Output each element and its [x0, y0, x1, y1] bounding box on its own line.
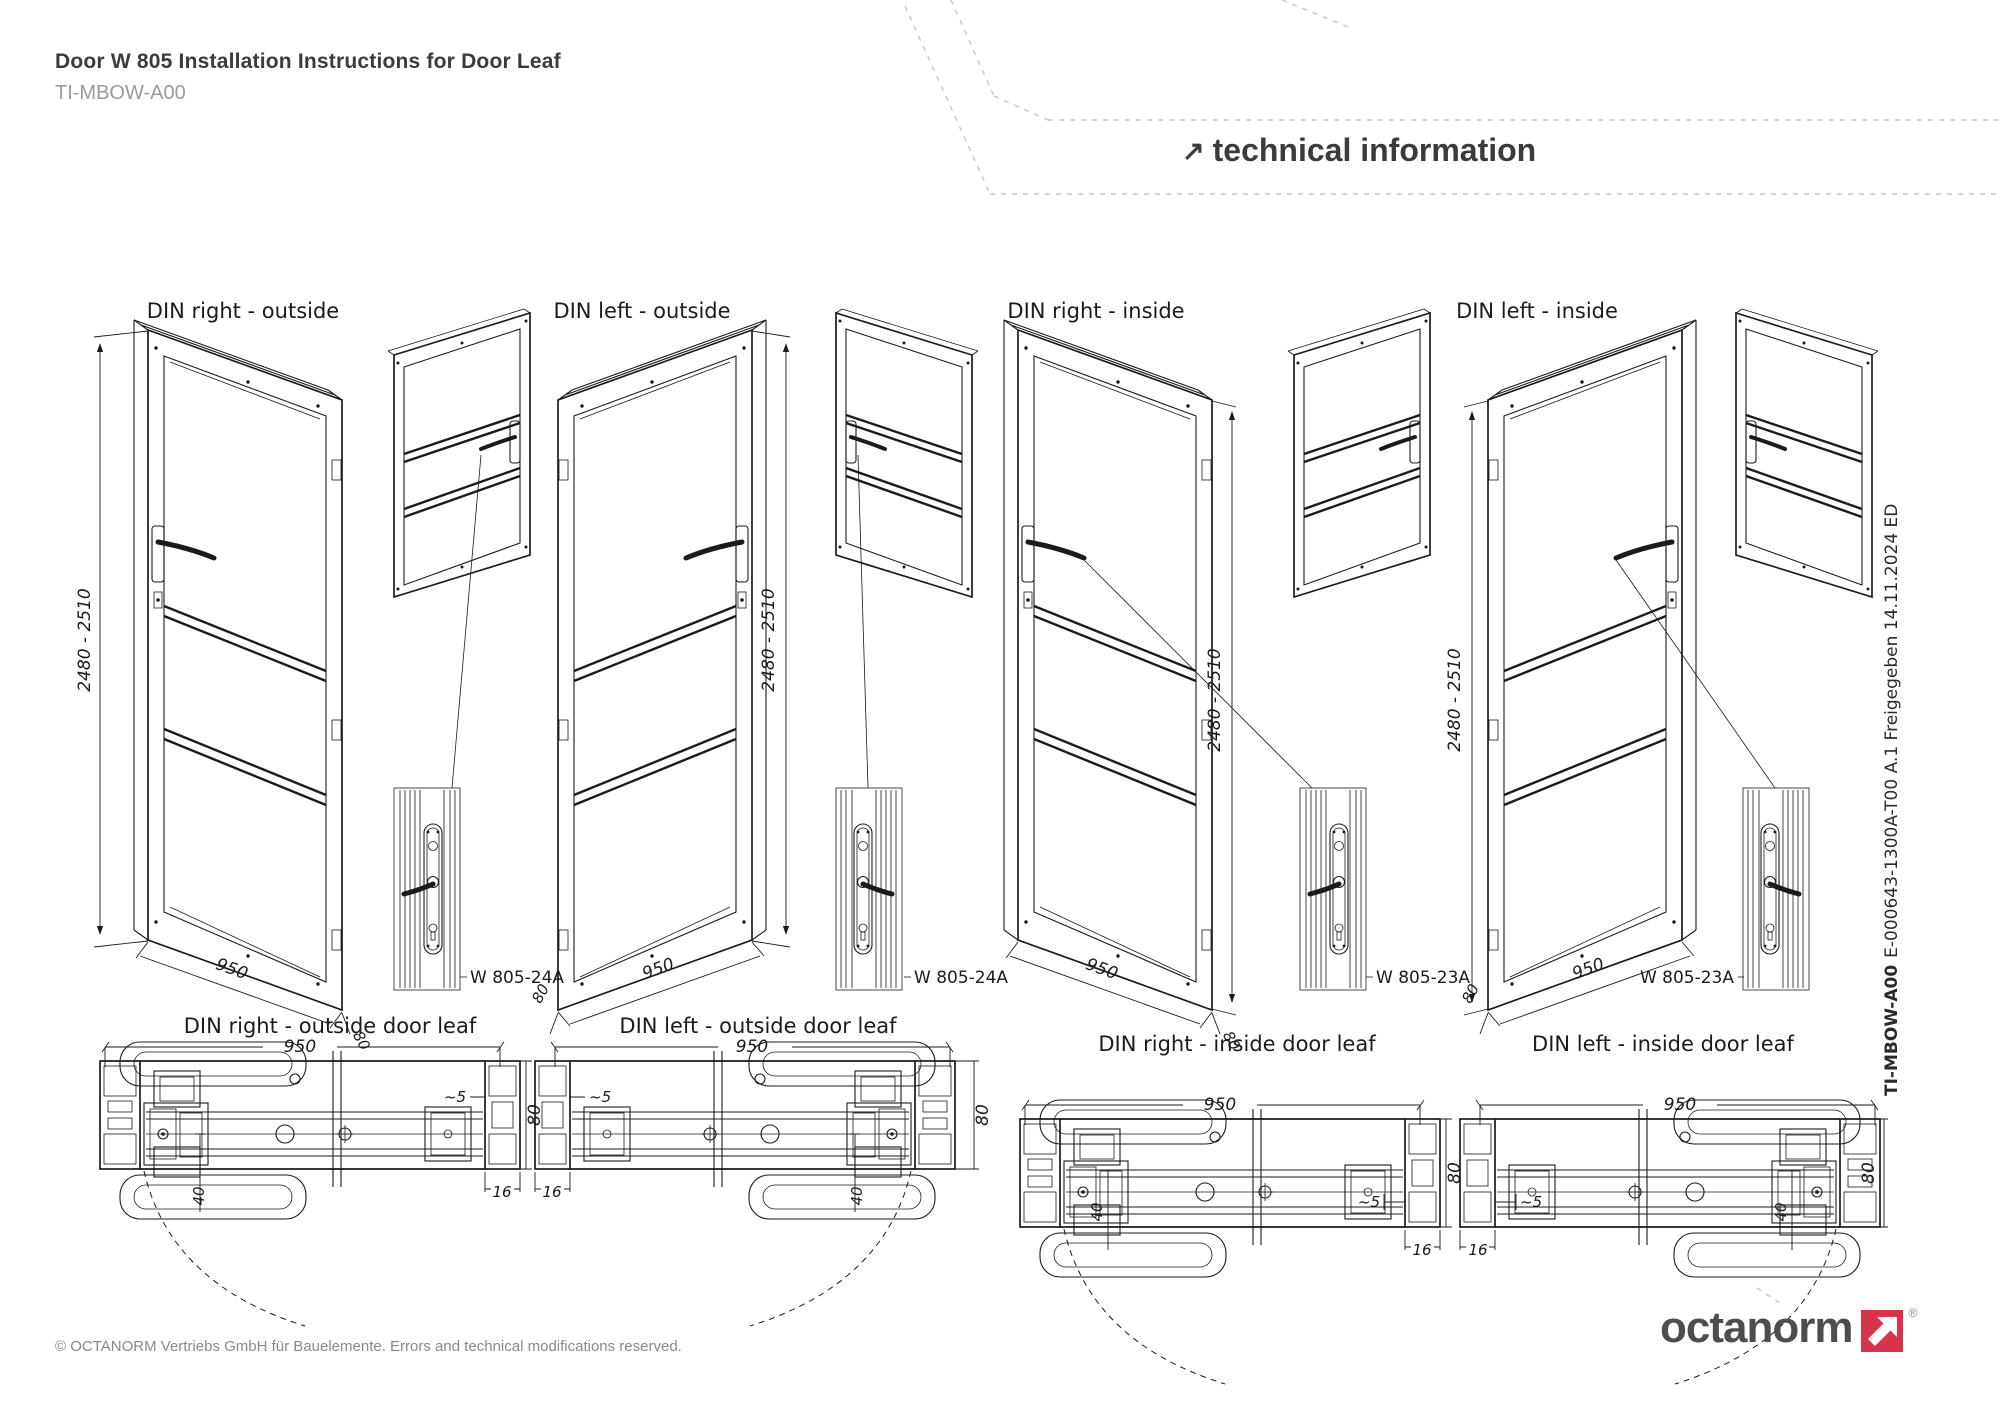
edge-dimension: 16	[1460, 1230, 1495, 1259]
gap-dimension: ~5	[1495, 1193, 1542, 1211]
detail-leader	[858, 455, 868, 788]
offset-dimension: 40	[1088, 1170, 1113, 1250]
gap-dimension: ~5	[1358, 1193, 1405, 1211]
edge-dimension: 16	[1405, 1230, 1440, 1259]
leaf-drawing	[388, 309, 530, 597]
lock-detail	[836, 788, 902, 990]
section-label: DIN right - outside door leaf	[184, 1014, 477, 1038]
section-drawing	[1020, 1100, 1440, 1384]
width-dimension-text: 950	[213, 954, 250, 984]
copyright-notice: © OCTANORM Vertriebs GmbH für Bauelement…	[55, 1338, 682, 1355]
door-drawing	[1488, 320, 1696, 1010]
gap-dimension: ~5	[444, 1088, 485, 1106]
svg-text:16: 16	[542, 1183, 561, 1201]
door-drawing	[558, 320, 766, 1010]
svg-text:80: 80	[973, 1104, 993, 1126]
part-number: W 805-24A	[470, 968, 564, 988]
svg-text:~5: ~5	[1358, 1193, 1380, 1211]
svg-text:16: 16	[492, 1183, 511, 1201]
revision-code: TI-MBOW-A00	[1882, 965, 1902, 1096]
svg-text:~5: ~5	[444, 1088, 466, 1106]
registered-mark: ®	[1908, 1306, 1917, 1320]
offset-dimension: 40	[1772, 1170, 1797, 1250]
section-width-text: 950	[284, 1037, 316, 1057]
detail-leader	[1084, 560, 1312, 788]
section-drawing	[100, 1042, 520, 1326]
svg-text:40: 40	[848, 1186, 866, 1205]
svg-text:16: 16	[1468, 1241, 1487, 1259]
svg-text:~5: ~5	[589, 1088, 611, 1106]
edge-dimension: 16	[535, 1172, 570, 1201]
offset-dimension: 40	[848, 1134, 866, 1212]
part-number: W 805-24A	[914, 968, 1008, 988]
view-label: DIN left - outside	[553, 299, 730, 323]
door-drawing	[134, 320, 342, 1010]
lock-detail	[1743, 788, 1809, 990]
svg-text:80: 80	[1859, 1162, 1879, 1184]
offset-dimension: 40	[190, 1134, 208, 1212]
technical-drawing-sheet: DIN right - outside 2480 - 2510 950 80 W…	[0, 0, 2000, 1413]
leaf-drawing	[1736, 309, 1878, 597]
section-label: DIN left - outside door leaf	[619, 1014, 897, 1038]
lock-detail	[394, 788, 460, 990]
thickness-dimension: 80	[951, 1061, 993, 1169]
height-dimension: 2480 - 2510	[75, 331, 148, 947]
view-din-left-inside: DIN left - inside 2480 - 2510 950 80 W 8…	[1445, 299, 1878, 1034]
svg-text:16: 16	[1412, 1241, 1431, 1259]
view-label: DIN right - outside	[147, 299, 339, 323]
octanorm-logo: octanorm ®	[1660, 1306, 1917, 1354]
revision-info: E-000643-1300A-T00 A.1 Freigegeben 14.11…	[1882, 504, 1902, 958]
edge-dimension: 16	[485, 1172, 520, 1201]
view-din-right-outside: DIN right - outside 2480 - 2510 950 80 W…	[75, 299, 564, 1053]
svg-text:40: 40	[190, 1186, 208, 1205]
thickness-dimension: 80	[1852, 1119, 1888, 1227]
lock-detail	[1300, 788, 1366, 990]
svg-text:80: 80	[1445, 1162, 1465, 1184]
height-dimension-text: 2480 - 2510	[1205, 648, 1225, 751]
view-din-left-outside: DIN left - outside 2480 - 2510 950 80 W …	[528, 299, 1008, 1034]
logo-wordmark: octanorm	[1660, 1306, 1852, 1350]
height-dimension-text: 2480 - 2510	[1445, 648, 1465, 751]
section-label: DIN right - inside door leaf	[1098, 1032, 1376, 1056]
view-din-right-inside: DIN right - inside 2480 - 2510 950 80 W …	[1004, 299, 1470, 1053]
svg-text:~5: ~5	[1520, 1193, 1542, 1211]
section-label: DIN left - inside door leaf	[1532, 1032, 1794, 1056]
detail-leader	[452, 455, 481, 788]
height-dimension: 2480 - 2510	[752, 331, 790, 947]
part-number: W 805-23A	[1376, 968, 1470, 988]
view-label: DIN left - inside	[1456, 299, 1618, 323]
thickness-dimension: 80	[508, 1061, 545, 1169]
depth-dimension: 80	[1458, 981, 1488, 1034]
section-drawing	[535, 1042, 955, 1326]
height-dimension-text: 2480 - 2510	[759, 588, 779, 691]
width-dimension: 950	[1006, 942, 1212, 1028]
leaf-drawing	[836, 309, 978, 597]
page-canvas: Door W 805 Installation Instructions for…	[0, 0, 2000, 1413]
width-dimension-text: 950	[1570, 954, 1607, 984]
gap-dimension: ~5	[570, 1088, 611, 1106]
height-dimension: 2480 - 2510	[1205, 401, 1236, 1015]
svg-text:40: 40	[1772, 1202, 1790, 1221]
height-dimension-text: 2480 - 2510	[75, 588, 95, 691]
section-din-left-outside: DIN left - outside door leaf 950 80 ~5 4…	[535, 1014, 993, 1326]
octanorm-arrow-icon	[1860, 1308, 1906, 1354]
width-dimension-text: 950	[640, 954, 677, 984]
leaf-drawing	[1288, 309, 1430, 597]
view-label: DIN right - inside	[1007, 299, 1184, 323]
width-dimension-text: 950	[1083, 954, 1120, 984]
depth-dimension: 80	[528, 981, 558, 1034]
door-drawing	[1004, 320, 1212, 1010]
section-width-text: 950	[1204, 1095, 1236, 1115]
height-dimension: 2480 - 2510	[1445, 401, 1488, 1015]
section-width-text: 950	[736, 1037, 768, 1057]
section-width-text: 950	[1664, 1095, 1696, 1115]
svg-text:40: 40	[1088, 1202, 1106, 1221]
revision-sidebar-text: TI-MBOW-A00E-000643-1300A-T00 A.1 Freige…	[1882, 504, 1902, 1096]
section-din-right-inside: DIN right - inside door leaf 950 80 ~5 4…	[1020, 1032, 1465, 1384]
section-din-right-outside: DIN right - outside door leaf 950 80 ~5 …	[100, 1014, 545, 1326]
part-number: W 805-23A	[1640, 968, 1734, 988]
